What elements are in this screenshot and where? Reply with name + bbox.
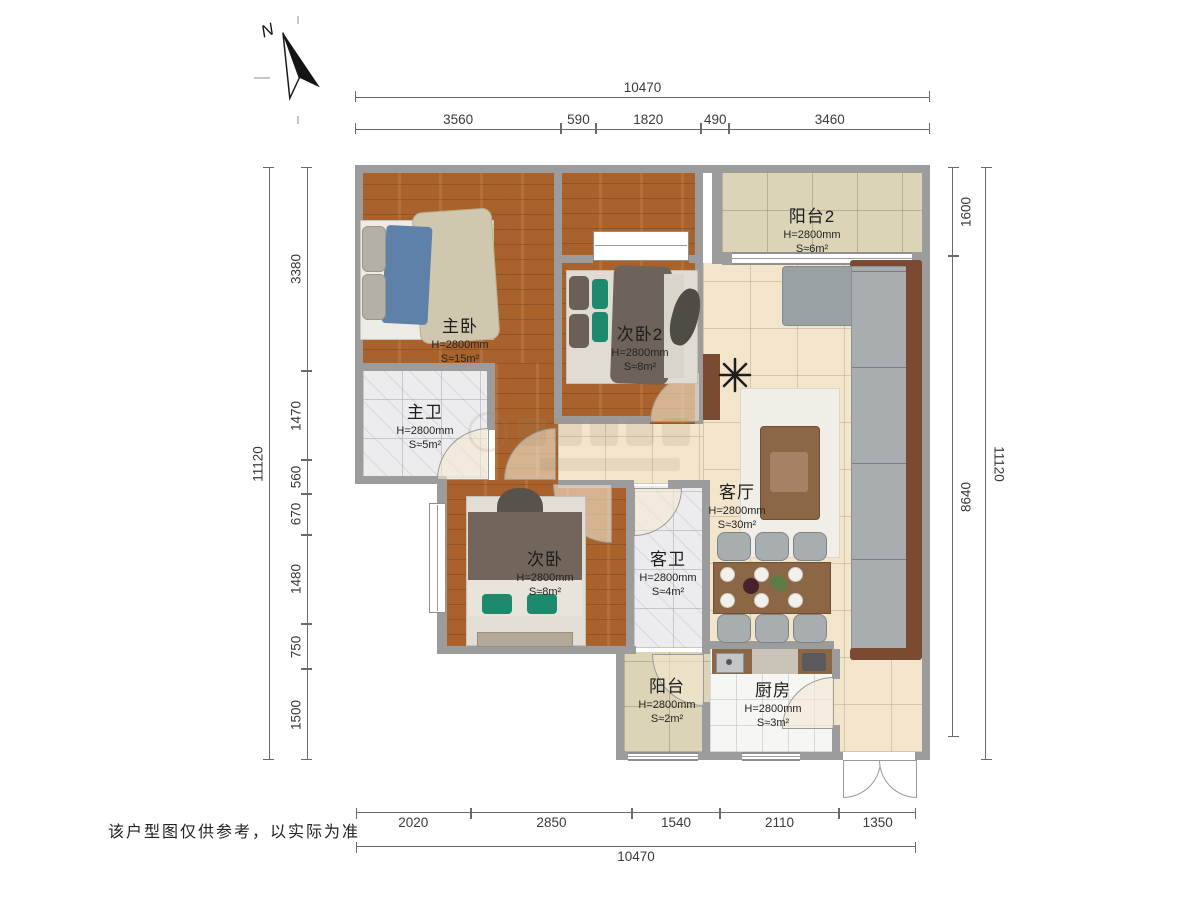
dim-segment: 3460 [729,104,930,130]
master-bed-blanket [381,225,432,325]
dim-right-total: 11120 [985,167,1011,760]
watermark-subline [540,458,680,471]
bedroom2-bed-duvet [610,265,672,385]
bedroom2-window [593,231,689,261]
dim-segment: 2110 [720,812,840,838]
dim-segment: 1600 [952,167,978,256]
plate [788,593,803,608]
wall-kitchen-right-upper [832,649,840,679]
wall-master-right [554,165,562,424]
entry-door-swing-left [843,760,881,798]
plate [754,593,769,608]
wall-kitchen-right-lower [832,725,840,752]
dim-segment: 490 [701,104,729,130]
kitchen-bottom-window [742,752,800,761]
fruit-bowl [743,578,759,594]
north-compass-icon: N [252,14,344,126]
bedroom3-pillow-green-1 [482,594,512,614]
bedroom3-bed-duvet [468,512,582,580]
bedroom3-window-line [437,505,438,611]
dim-segment: 1540 [632,812,719,838]
dim-top-total: 10470 [355,72,930,98]
wall-masterbath-top [355,363,495,371]
wall-top [355,165,930,173]
plate [788,567,803,582]
bedroom2-pillow-2 [569,314,589,348]
dim-segment: 3560 [355,104,561,130]
dining-chair [755,614,789,643]
wall-guestbath-right [702,480,710,654]
dim-left-total: 11120 [246,167,270,760]
master-bed-pillow-1 [362,226,386,272]
bedroom2-pillow-1 [569,276,589,310]
plate [720,567,735,582]
balcony-bottom-window [628,752,698,761]
dim-bottom-segments: 20202850154021101350 [356,812,916,838]
dim-segment: 1820 [596,104,702,130]
entry-door-swing-right [879,760,917,798]
master-bed-pillow-2 [362,274,386,320]
wall-bedroom2-winstub-left [558,255,593,263]
dim-segment: 1480 [284,535,308,624]
dim-bottom-total: 10470 [356,846,916,872]
dim-segment: 10470 [356,846,916,872]
plant-icon [716,356,754,394]
wall-balcony2-left [712,165,722,264]
sofa-frame-bottom [850,648,922,660]
wall-balcony-left [616,654,624,760]
kitchen-faucet [726,659,732,665]
balcony2-window-end-left [722,252,732,265]
dim-segment: 11120 [985,167,1011,760]
dim-segment: 2020 [356,812,471,838]
bedroom2-pillow-green-2 [592,312,608,342]
bedroom3-pillow-green-2 [527,594,557,614]
coffee-table-tray [770,452,808,492]
dim-segment: 590 [561,104,595,130]
dim-right-segments: 16008640 [952,167,978,737]
dim-segment: 2850 [471,812,633,838]
balcony2-floor [722,167,922,256]
dim-segment: 670 [284,494,308,535]
dim-top-segments: 356059018204903460 [355,104,930,130]
kitchen-stove [802,653,826,671]
dining-chair [755,532,789,561]
sofa-cushions [851,266,910,656]
dining-chair [717,532,751,561]
dining-chair [793,614,827,643]
dim-segment: 560 [284,460,308,494]
wall-masterbath-bottom [355,476,447,484]
sofa-frame-right [906,262,922,658]
wall-balcony-kitchen [702,702,710,752]
floorplan-canvas: N [0,0,1200,900]
dining-chair [717,614,751,643]
dim-segment: 3380 [284,167,308,371]
sofa-chaise [782,266,854,326]
dim-segment: 1500 [284,669,308,760]
bedroom3-bench [477,632,573,647]
north-letter: N [258,19,277,41]
dim-segment: 10470 [355,72,930,98]
wall-guestbath-left [626,480,634,654]
plate [720,593,735,608]
wall-bedroom2-winstub-right [689,255,703,263]
dim-segment: 1350 [839,812,916,838]
dim-segment: 11120 [246,167,270,760]
bedroom2-window-line [595,245,687,246]
dim-left-segments: 3380147056067014807501500 [284,167,308,760]
watermark [468,412,690,452]
kitchen-counter-tile [752,649,798,674]
disclaimer-text: 该户型图仅供参考，以实际为准 [108,818,360,842]
wall-bedroom3-bottom [437,646,636,654]
bedroom2-pillow-green-1 [592,279,608,309]
dim-segment: 8640 [952,256,978,737]
dim-segment: 750 [284,624,308,669]
dining-chair [793,532,827,561]
wall-right [922,165,930,760]
dim-segment: 1470 [284,371,308,460]
